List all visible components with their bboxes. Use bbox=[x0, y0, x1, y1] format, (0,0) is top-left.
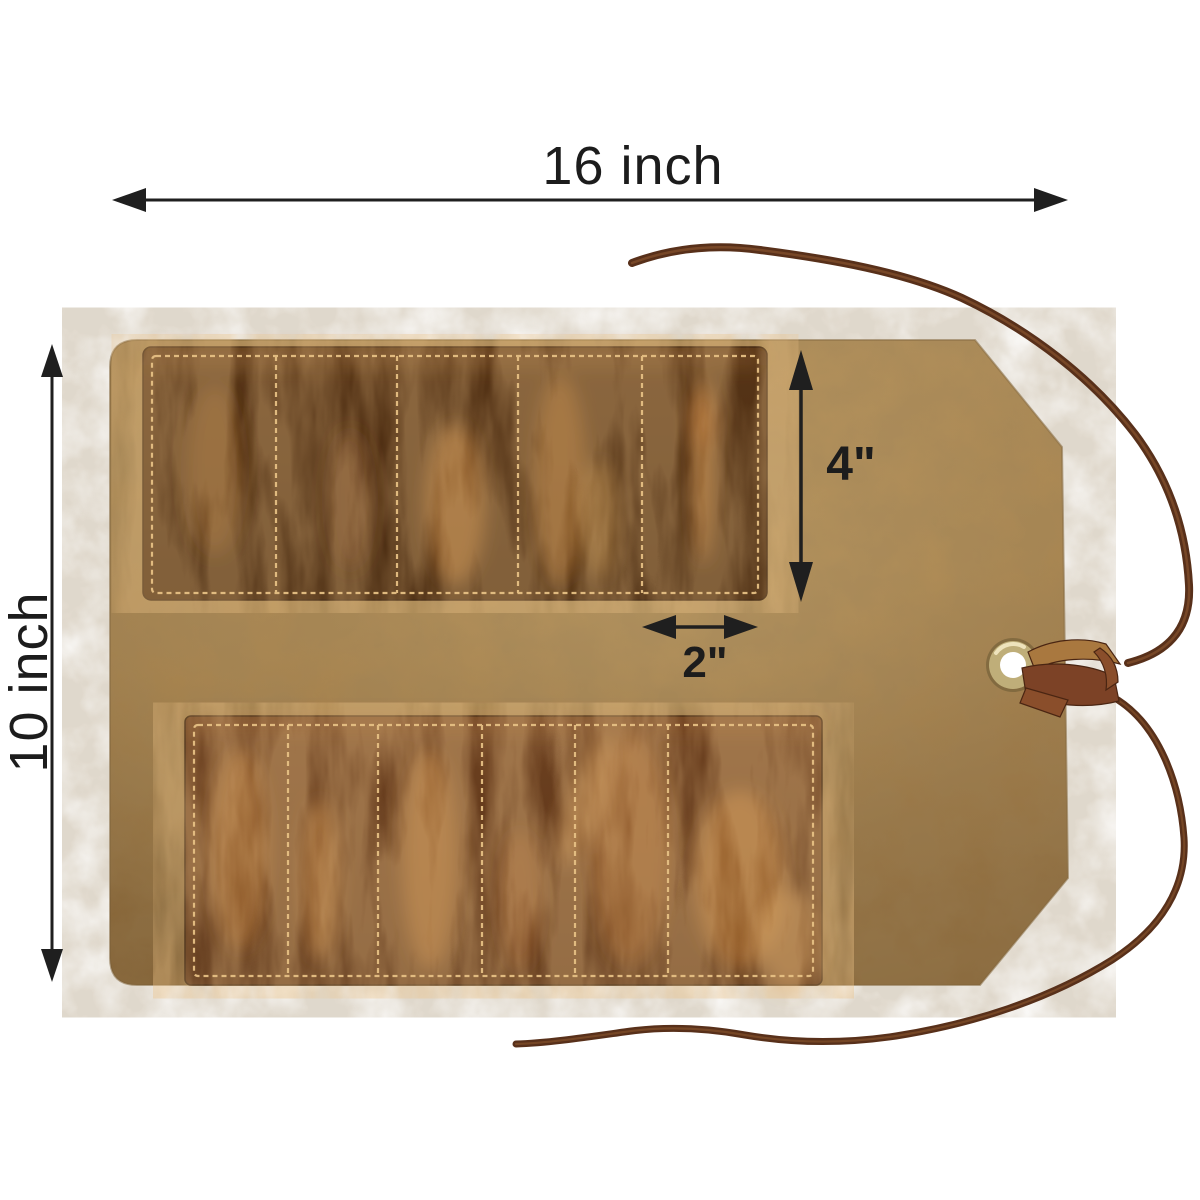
lace-knot bbox=[1020, 640, 1120, 717]
pocket-height-label: 4" bbox=[826, 438, 875, 491]
arrowhead-right-icon bbox=[1034, 188, 1068, 212]
arrowhead-up-icon bbox=[41, 344, 63, 377]
bottom-pocket-streak-texture bbox=[185, 716, 822, 985]
pocket-width-label: 2" bbox=[682, 638, 727, 687]
top-pocket-panel bbox=[143, 347, 767, 600]
top-pocket-streak-texture bbox=[143, 347, 767, 600]
overall-height-label: 10 inch bbox=[0, 591, 59, 772]
overall-width-dimension: 16 inch bbox=[112, 136, 1068, 212]
arrowhead-left-icon bbox=[112, 188, 146, 212]
arrowhead-down-icon bbox=[41, 949, 63, 982]
overall-height-dimension: 10 inch bbox=[0, 344, 63, 982]
overall-width-label: 16 inch bbox=[542, 136, 723, 196]
leather-tool-roll bbox=[110, 247, 1189, 1044]
scene: 16 inch 10 inch 4" 2" bbox=[0, 0, 1200, 1200]
bottom-pocket-panel bbox=[185, 716, 822, 990]
product-dimension-photo: 16 inch 10 inch 4" 2" bbox=[0, 0, 1200, 1200]
